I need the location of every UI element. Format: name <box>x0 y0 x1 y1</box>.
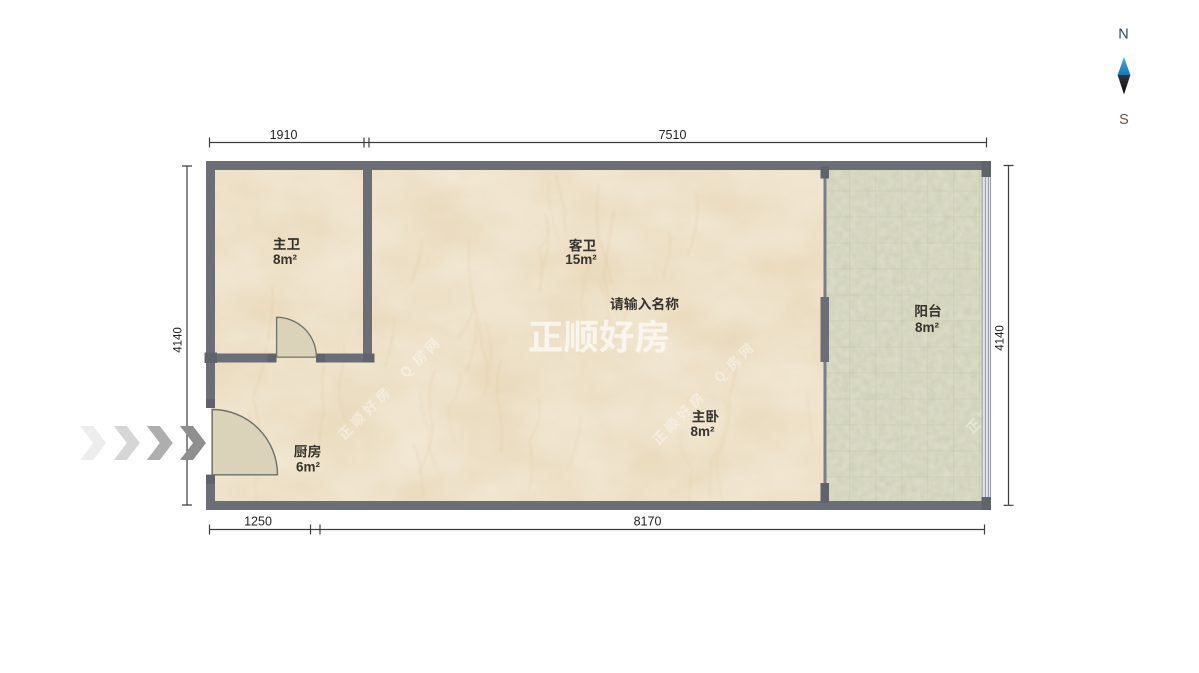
svg-text:8m²: 8m² <box>273 252 298 267</box>
svg-text:N: N <box>1118 27 1128 43</box>
svg-text:4140: 4140 <box>995 325 1007 351</box>
svg-text:15m²: 15m² <box>565 252 597 267</box>
svg-text:8m²: 8m² <box>915 320 940 335</box>
svg-text:7510: 7510 <box>659 128 687 142</box>
svg-text:1910: 1910 <box>270 128 298 142</box>
svg-text:8170: 8170 <box>634 515 662 529</box>
svg-text:8m²: 8m² <box>690 424 715 439</box>
svg-text:S: S <box>1119 112 1129 128</box>
svg-text:6m²: 6m² <box>296 460 321 475</box>
svg-text:4140: 4140 <box>173 327 185 353</box>
svg-text:1250: 1250 <box>244 515 272 529</box>
